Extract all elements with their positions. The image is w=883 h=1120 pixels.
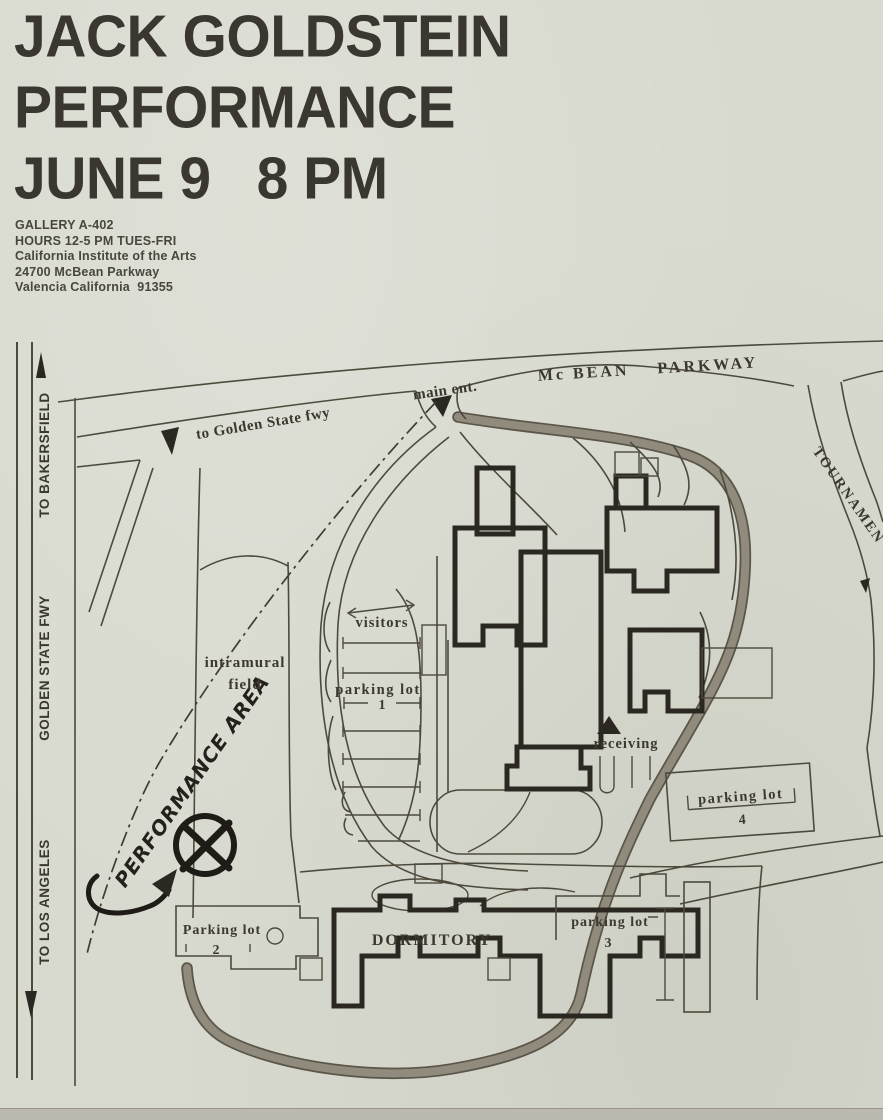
shaded-loop-road (187, 417, 745, 1073)
campus-map: visitors parking lot 1 receiving (0, 338, 883, 1120)
parking-lot-4-number: 4 (738, 813, 746, 828)
to-golden-state-label: to Golden State fwy (195, 405, 332, 443)
intramural-field-label-1: intramural (205, 655, 286, 671)
title-line-3: JUNE 9 8 PM (14, 143, 511, 217)
mcbean-parkway-road (58, 341, 883, 455)
scan-edge (0, 1108, 883, 1120)
performance-area-annotation: PERFORMANCE AREA (88, 670, 274, 913)
parking-lot-1-number: 1 (379, 698, 386, 713)
parking-lot-3-number: 3 (605, 936, 612, 951)
visitors-label: visitors (355, 615, 408, 631)
mcbean-parkway-label: Mc BEAN PARKWAY (537, 354, 758, 384)
info-street: 24700 McBean Parkway (15, 265, 197, 281)
info-institute: California Institute of the Arts (15, 249, 197, 265)
to-bakersfield-label: TO BAKERSFIELD (37, 392, 52, 517)
to-freeway-arrow-icon (161, 427, 179, 455)
parking-lot-4-label: parking lot (697, 786, 783, 808)
parking-lot-2: Parking lot 2 (176, 906, 318, 969)
parking-rows (343, 637, 420, 841)
hand-drawn-arrowhead-icon (152, 869, 177, 897)
north-arrow-icon (36, 352, 46, 378)
golden-state-fwy-label: GOLDEN STATE FWY (37, 595, 52, 741)
dormitory-building: DORMITORY (300, 864, 698, 1016)
info-city: Valencia California 91355 (15, 280, 197, 296)
event-poster: JACK GOLDSTEIN PERFORMANCE JUNE 9 8 PM G… (0, 0, 883, 1120)
southeast-roads (630, 836, 883, 904)
parking-lot-4: parking lot 4 (666, 763, 814, 841)
to-los-angeles-label: TO LOS ANGELES (37, 839, 52, 965)
receiving-label: receiving (593, 736, 658, 752)
poster-title: JACK GOLDSTEIN PERFORMANCE JUNE 9 8 PM (14, 2, 511, 215)
parking-lot-1: visitors parking lot 1 (324, 600, 421, 841)
info-gallery: GALLERY A-402 (15, 218, 197, 234)
parking-lot-2-number: 2 (213, 943, 220, 958)
lot2-circle-marker (267, 928, 283, 944)
parking-lot-3-label: parking lot (571, 915, 649, 930)
parking-lot-1-label: parking lot (335, 682, 420, 698)
map-labels: TO BAKERSFIELD GOLDEN STATE FWY TO LOS A… (37, 354, 883, 964)
title-line-2: PERFORMANCE (14, 72, 511, 146)
receiving-area: receiving (593, 716, 658, 793)
info-hours: HOURS 12-5 PM TUES-FRI (15, 234, 197, 250)
south-arrow-icon (25, 991, 37, 1018)
intramural-field-label-2: field (228, 677, 261, 693)
title-line-1: JACK GOLDSTEIN (14, 1, 511, 75)
gallery-info-block: GALLERY A-402 HOURS 12-5 PM TUES-FRI Cal… (15, 218, 197, 296)
dormitory-label: DORMITORY (372, 932, 492, 949)
parking-lot-2-label: Parking lot (183, 923, 261, 938)
tournament-road-label: TOURNAMEN (809, 444, 883, 547)
performance-spot-x (183, 823, 229, 869)
